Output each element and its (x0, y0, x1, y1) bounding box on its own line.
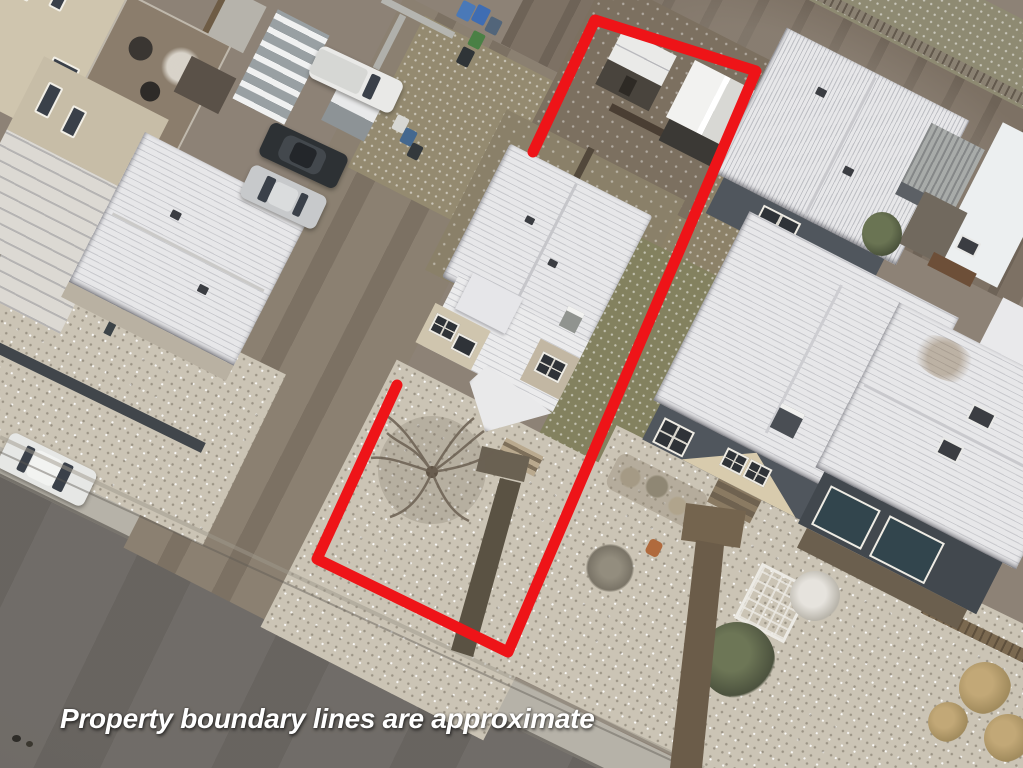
aerial-photo: Property boundary lines are approximate (0, 0, 1023, 768)
snowy-tree (790, 571, 840, 621)
neighbor2-chimney (770, 403, 805, 439)
bin-gray (484, 16, 503, 36)
grass-tuft-1 (959, 662, 1011, 714)
patio-furniture (124, 32, 156, 64)
deck-stairs (0, 231, 1, 294)
hot-tub (137, 78, 164, 105)
grass-tuft-2 (928, 702, 968, 742)
round-bush (699, 622, 775, 698)
debris (26, 741, 33, 747)
shrub-green (862, 212, 902, 256)
bird (12, 735, 21, 742)
twiggy-bush (586, 544, 634, 592)
caption: Property boundary lines are approximate (60, 703, 620, 735)
